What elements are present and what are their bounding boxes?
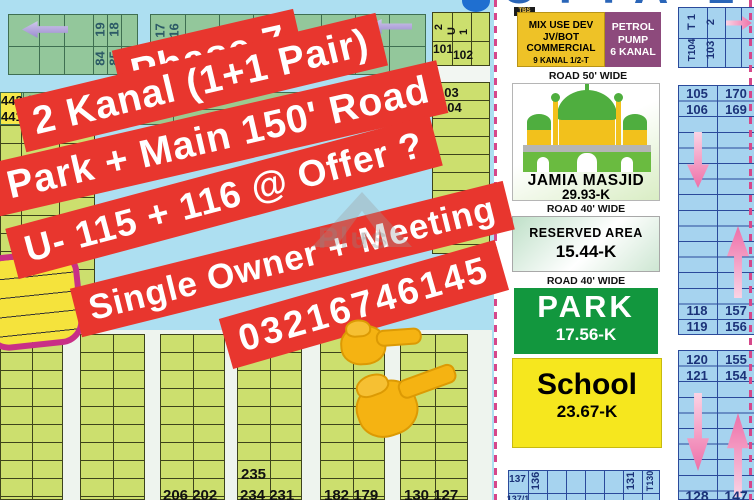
reserved-name: RESERVED AREA bbox=[513, 226, 659, 240]
plot-number: 18 bbox=[101, 22, 128, 38]
plot-number: 2 bbox=[699, 13, 723, 31]
mix-use-sub: 9 KANAL 1/2-T bbox=[518, 56, 604, 65]
watermark-text: Plus bbox=[318, 222, 389, 256]
plot-number: 182 179 bbox=[324, 487, 378, 500]
masjid-area: 29.93-K bbox=[513, 187, 659, 202]
mix-use-line: JV/BOT bbox=[518, 32, 604, 44]
plot-number: 101 bbox=[433, 42, 453, 56]
plot-block bbox=[160, 334, 225, 500]
park-area-value: 17.56-K bbox=[514, 325, 658, 345]
plot-number: 106 bbox=[678, 102, 716, 117]
plot-number: 137/1 bbox=[506, 494, 530, 500]
road-label: ROAD 50' WIDE bbox=[514, 70, 662, 82]
petrol-line: PUMP bbox=[605, 34, 661, 47]
arrow-down-icon bbox=[687, 393, 709, 471]
flyer-root: 19 18 84 85 17 16 442 441 377 378 376 37… bbox=[0, 0, 754, 500]
plot-number: 128 bbox=[678, 488, 716, 500]
plot-number: U 1 bbox=[445, 19, 471, 35]
reserved-area-value: 15.44-K bbox=[513, 242, 659, 262]
plot-number: T130 bbox=[642, 472, 658, 490]
jamia-masjid-box: JAMIA MASJID 29.93-K bbox=[512, 83, 660, 201]
school-box: School 23.67-K bbox=[512, 358, 662, 448]
plot-number: 235 bbox=[241, 466, 266, 483]
plot-number: 120 bbox=[678, 352, 716, 367]
plot-block bbox=[80, 334, 145, 500]
arrow-up-icon bbox=[727, 226, 749, 298]
road-label: ROAD 40' WIDE bbox=[512, 203, 660, 215]
plot-column-1 bbox=[678, 85, 754, 335]
mix-use-box: MIX USE DEV JV/BOT COMMERCIAL 9 KANAL 1/… bbox=[517, 12, 605, 67]
plot-number: 118 bbox=[678, 303, 716, 318]
plot-number: 119 bbox=[678, 319, 716, 334]
plot-number: 131 bbox=[623, 472, 639, 490]
boundary-dashed-line bbox=[749, 0, 752, 500]
arrow-down-icon bbox=[687, 132, 709, 188]
plot-number: 137 bbox=[508, 474, 527, 485]
mix-use-line: COMMERCIAL bbox=[518, 43, 604, 55]
plot-number: 234 231 bbox=[240, 487, 294, 500]
road-label: ROAD 40' WIDE bbox=[512, 275, 660, 287]
arrow-up-icon bbox=[727, 413, 749, 497]
plot-number: 102 bbox=[453, 48, 473, 62]
plot-number: 130 127 bbox=[404, 487, 458, 500]
petrol-pump-box: PETROL PUMP 6 KANAL bbox=[605, 12, 661, 67]
legend-panel: UTTA 2 0 TBS MIX USE DEV JV/BOT COMMERCI… bbox=[494, 0, 754, 500]
school-area-value: 23.67-K bbox=[513, 402, 661, 422]
park-box: PARK 17.56-K bbox=[514, 288, 658, 354]
plot-block bbox=[0, 334, 63, 500]
mix-use-line: MIX USE DEV bbox=[518, 20, 604, 32]
park-name: PARK bbox=[514, 289, 658, 325]
reserved-area-box: RESERVED AREA 15.44-K bbox=[512, 216, 660, 272]
plot-number: 103 bbox=[699, 41, 723, 59]
plot-number: 136 bbox=[528, 472, 544, 490]
school-name: School bbox=[513, 368, 661, 402]
petrol-line: 6 KANAL bbox=[605, 46, 661, 59]
plot-number: 206 202 bbox=[163, 487, 217, 500]
plot-number: 105 bbox=[678, 86, 716, 101]
petrol-line: PETROL bbox=[605, 21, 661, 34]
plot-number: 121 bbox=[678, 368, 716, 383]
